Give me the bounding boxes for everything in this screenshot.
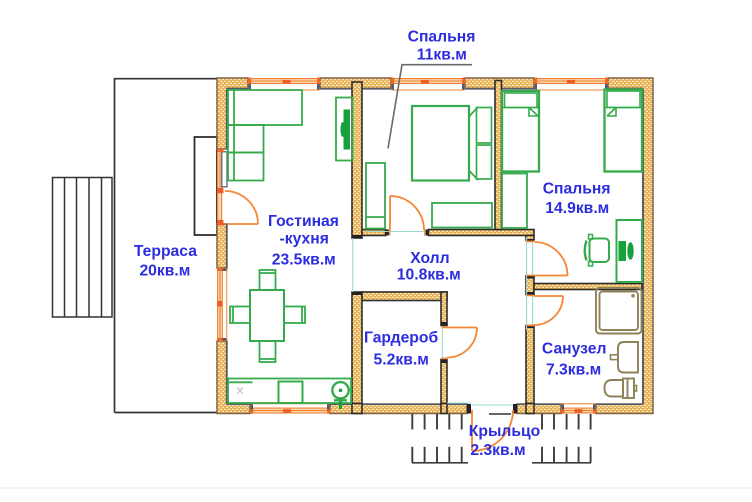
svg-text:11кв.м: 11кв.м <box>417 47 467 64</box>
svg-text:Гардероб: Гардероб <box>364 330 438 347</box>
svg-text:Гостиная: Гостиная <box>268 213 339 230</box>
svg-text:Терраса: Терраса <box>134 243 197 260</box>
svg-text:23.5кв.м: 23.5кв.м <box>272 251 336 268</box>
svg-text:Холл: Холл <box>410 250 449 267</box>
svg-text:7.3кв.м: 7.3кв.м <box>546 361 601 378</box>
svg-text:2.3кв.м: 2.3кв.м <box>470 442 525 459</box>
svg-text:-кухня: -кухня <box>280 231 329 248</box>
svg-text:20кв.м: 20кв.м <box>139 263 190 280</box>
svg-text:Санузел: Санузел <box>542 341 607 358</box>
svg-text:5.2кв.м: 5.2кв.м <box>374 351 429 368</box>
svg-text:10.8кв.м: 10.8кв.м <box>397 267 461 284</box>
svg-text:Спальня: Спальня <box>408 29 476 46</box>
svg-text:14.9кв.м: 14.9кв.м <box>545 200 609 217</box>
svg-text:Спальня: Спальня <box>543 181 611 198</box>
svg-text:Крыльцо: Крыльцо <box>469 423 540 440</box>
